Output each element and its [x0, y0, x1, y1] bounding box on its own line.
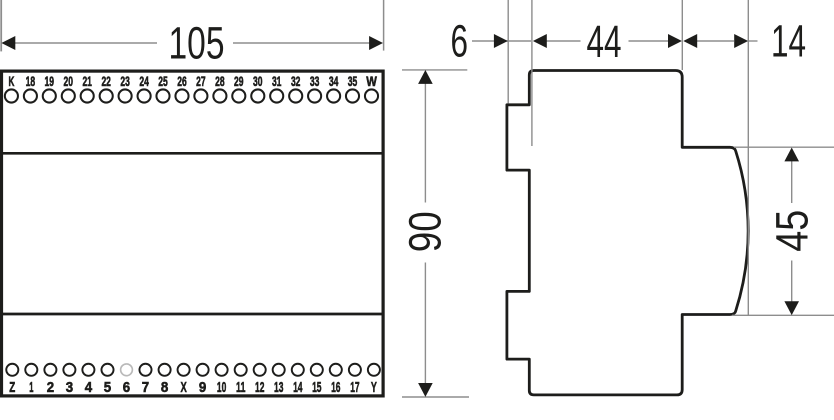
svg-text:16: 16 — [331, 379, 340, 396]
svg-text:20: 20 — [64, 74, 74, 89]
svg-text:Z: Z — [9, 379, 15, 396]
svg-text:17: 17 — [350, 379, 359, 396]
svg-text:23: 23 — [120, 74, 130, 89]
svg-text:35: 35 — [348, 74, 358, 89]
svg-text:W: W — [366, 74, 377, 89]
svg-text:1: 1 — [29, 379, 33, 396]
svg-text:21: 21 — [82, 74, 92, 89]
svg-text:90: 90 — [399, 211, 450, 252]
svg-text:33: 33 — [310, 74, 320, 89]
svg-text:4: 4 — [85, 379, 93, 396]
svg-text:14: 14 — [293, 379, 303, 396]
svg-text:18: 18 — [26, 74, 36, 89]
svg-text:7: 7 — [142, 379, 149, 396]
svg-text:Y: Y — [371, 379, 377, 396]
svg-text:32: 32 — [291, 74, 301, 89]
svg-text:25: 25 — [158, 74, 168, 89]
svg-text:45: 45 — [767, 210, 818, 252]
svg-text:8: 8 — [161, 379, 168, 396]
svg-text:2: 2 — [47, 379, 54, 396]
svg-text:X: X — [180, 379, 186, 396]
svg-text:27: 27 — [196, 74, 206, 89]
svg-text:28: 28 — [215, 74, 225, 89]
svg-text:19: 19 — [45, 74, 55, 89]
svg-text:29: 29 — [234, 74, 244, 89]
svg-text:9: 9 — [199, 379, 206, 396]
svg-text:3: 3 — [66, 379, 73, 396]
svg-text:22: 22 — [101, 74, 111, 89]
svg-text:6: 6 — [450, 16, 468, 67]
svg-text:5: 5 — [104, 379, 111, 396]
svg-text:24: 24 — [139, 74, 149, 89]
svg-text:44: 44 — [587, 16, 622, 67]
svg-text:14: 14 — [771, 16, 806, 67]
svg-text:6: 6 — [123, 379, 130, 396]
svg-text:10: 10 — [217, 379, 226, 396]
svg-text:34: 34 — [329, 74, 339, 89]
svg-text:13: 13 — [274, 379, 283, 396]
svg-text:31: 31 — [272, 74, 282, 89]
svg-text:26: 26 — [177, 74, 187, 89]
svg-text:12: 12 — [255, 379, 264, 396]
svg-text:105: 105 — [169, 18, 225, 69]
svg-text:15: 15 — [312, 379, 321, 396]
svg-text:K: K — [8, 74, 14, 89]
svg-text:30: 30 — [253, 74, 263, 89]
svg-text:11: 11 — [236, 379, 245, 396]
